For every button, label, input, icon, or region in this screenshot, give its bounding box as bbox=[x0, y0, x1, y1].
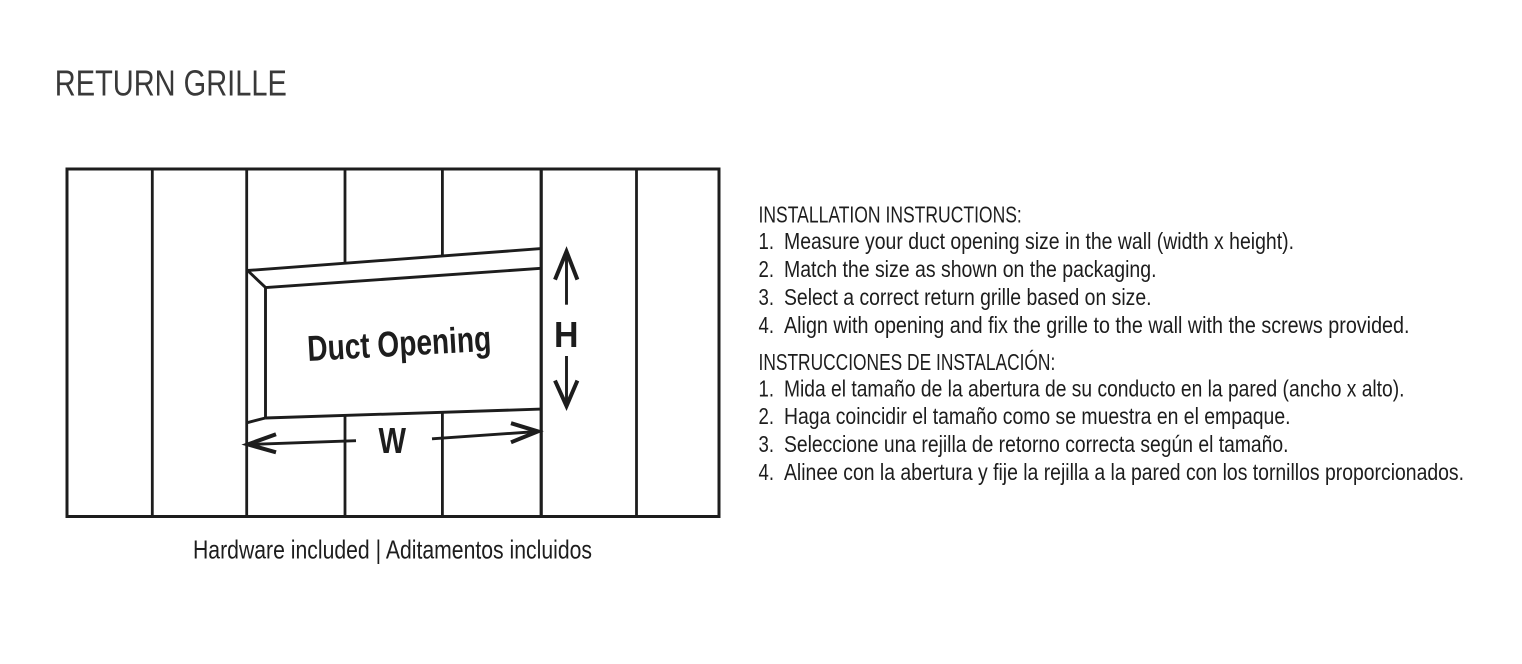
svg-text:RETURN GRILLE: RETURN GRILLE bbox=[55, 63, 287, 104]
svg-text:INSTALLATION INSTRUCTIONS:: INSTALLATION INSTRUCTIONS: bbox=[759, 202, 1022, 228]
svg-text:Match the size as shown on the: Match the size as shown on the packaging… bbox=[784, 256, 1157, 282]
svg-text:2.: 2. bbox=[759, 403, 775, 429]
svg-text:1.: 1. bbox=[759, 375, 775, 401]
svg-text:Haga coincidir el tamaño como: Haga coincidir el tamaño como se muestra… bbox=[784, 403, 1291, 429]
svg-text:Seleccione una rejilla de reto: Seleccione una rejilla de retorno correc… bbox=[784, 431, 1289, 457]
svg-text:W: W bbox=[379, 420, 407, 461]
svg-text:3.: 3. bbox=[759, 284, 775, 310]
svg-text:Measure your duct opening size: Measure your duct opening size in the wa… bbox=[784, 228, 1294, 254]
svg-text:3.: 3. bbox=[759, 431, 775, 457]
svg-text:Hardware included | Aditamento: Hardware included | Aditamentos incluido… bbox=[193, 534, 592, 564]
svg-text:1.: 1. bbox=[759, 228, 775, 254]
svg-text:4.: 4. bbox=[759, 459, 775, 485]
svg-text:Mida el tamaño de la abertura: Mida el tamaño de la abertura de su cond… bbox=[784, 375, 1405, 401]
svg-text:Select a correct return grille: Select a correct return grille based on … bbox=[784, 284, 1152, 310]
svg-text:2.: 2. bbox=[759, 256, 775, 282]
svg-text:Alinee con la abertura y fije: Alinee con la abertura y fije la rejilla… bbox=[784, 459, 1464, 485]
svg-text:INSTRUCCIONES DE INSTALACIÓN:: INSTRUCCIONES DE INSTALACIÓN: bbox=[759, 349, 1056, 375]
svg-text:4.: 4. bbox=[759, 312, 775, 338]
svg-text:H: H bbox=[554, 314, 579, 355]
svg-text:Align with opening and fix the: Align with opening and fix the grille to… bbox=[784, 312, 1410, 338]
